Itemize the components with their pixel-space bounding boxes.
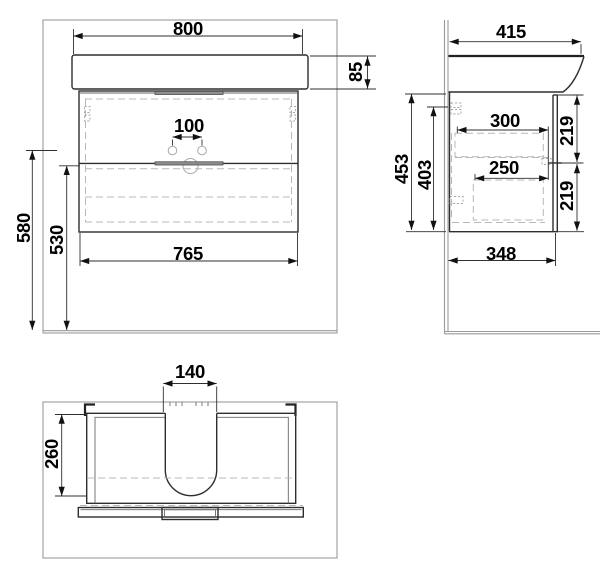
dim-label-cabinet-depth: 348 bbox=[486, 244, 516, 263]
dim-label-bottom-drawer-front: 219 bbox=[557, 181, 576, 211]
top-drawer-box bbox=[455, 133, 543, 156]
dim-label-cabinet-height-front: 530 bbox=[47, 225, 66, 255]
front-rail bbox=[78, 508, 303, 518]
top-view bbox=[43, 384, 337, 559]
siphon-cutout bbox=[165, 413, 216, 495]
bracket-marks-right bbox=[290, 107, 296, 122]
dim-cutout-width bbox=[163, 384, 216, 413]
dim-label-cabinet-width: 765 bbox=[173, 244, 203, 263]
siphon-circle bbox=[183, 159, 198, 174]
front-view-frame bbox=[43, 20, 337, 333]
drawer-handle-bottom bbox=[155, 162, 223, 165]
drawer-handle-top bbox=[155, 91, 223, 94]
dim-sink-height bbox=[310, 56, 376, 89]
front-view bbox=[26, 20, 376, 333]
dim-label-faucet-spacing: 100 bbox=[174, 117, 204, 136]
dim-label-sink-height: 85 bbox=[346, 62, 365, 82]
dim-faucet-spacing bbox=[173, 137, 203, 146]
bottom-drawer-box bbox=[473, 180, 543, 220]
dim-label-cabinet-height-side: 453 bbox=[392, 154, 411, 184]
dim-label-bottom-drawer-depth: 250 bbox=[489, 158, 519, 177]
dim-label-sink-depth: 415 bbox=[496, 22, 526, 41]
dim-label-sink-width: 800 bbox=[173, 19, 203, 38]
mounting-bracket-marks bbox=[451, 103, 461, 114]
dim-label-top-drawer-front: 219 bbox=[557, 116, 576, 146]
washbasin-front bbox=[72, 55, 308, 89]
dim-label-cabinet-inner-height: 403 bbox=[415, 160, 434, 190]
washbasin-side bbox=[449, 56, 585, 92]
drawer-plan bbox=[87, 413, 296, 503]
drain-tick-marks bbox=[170, 403, 208, 407]
corner-bracket-right bbox=[286, 405, 296, 417]
dim-sink-depth bbox=[450, 42, 582, 54]
drawing-linework bbox=[0, 0, 600, 575]
dim-label-drawer-inner-depth: 260 bbox=[42, 439, 61, 469]
faucet-hole-left bbox=[168, 146, 177, 155]
dim-label-overall-height: 580 bbox=[14, 213, 33, 243]
faucet-hole-right bbox=[198, 146, 207, 155]
dim-label-top-drawer-depth: 300 bbox=[490, 112, 520, 131]
dim-label-cutout-width: 140 bbox=[175, 363, 205, 382]
vanity-technical-drawing: 800 85 100 580 530 765 415 300 250 453 4… bbox=[0, 0, 600, 575]
